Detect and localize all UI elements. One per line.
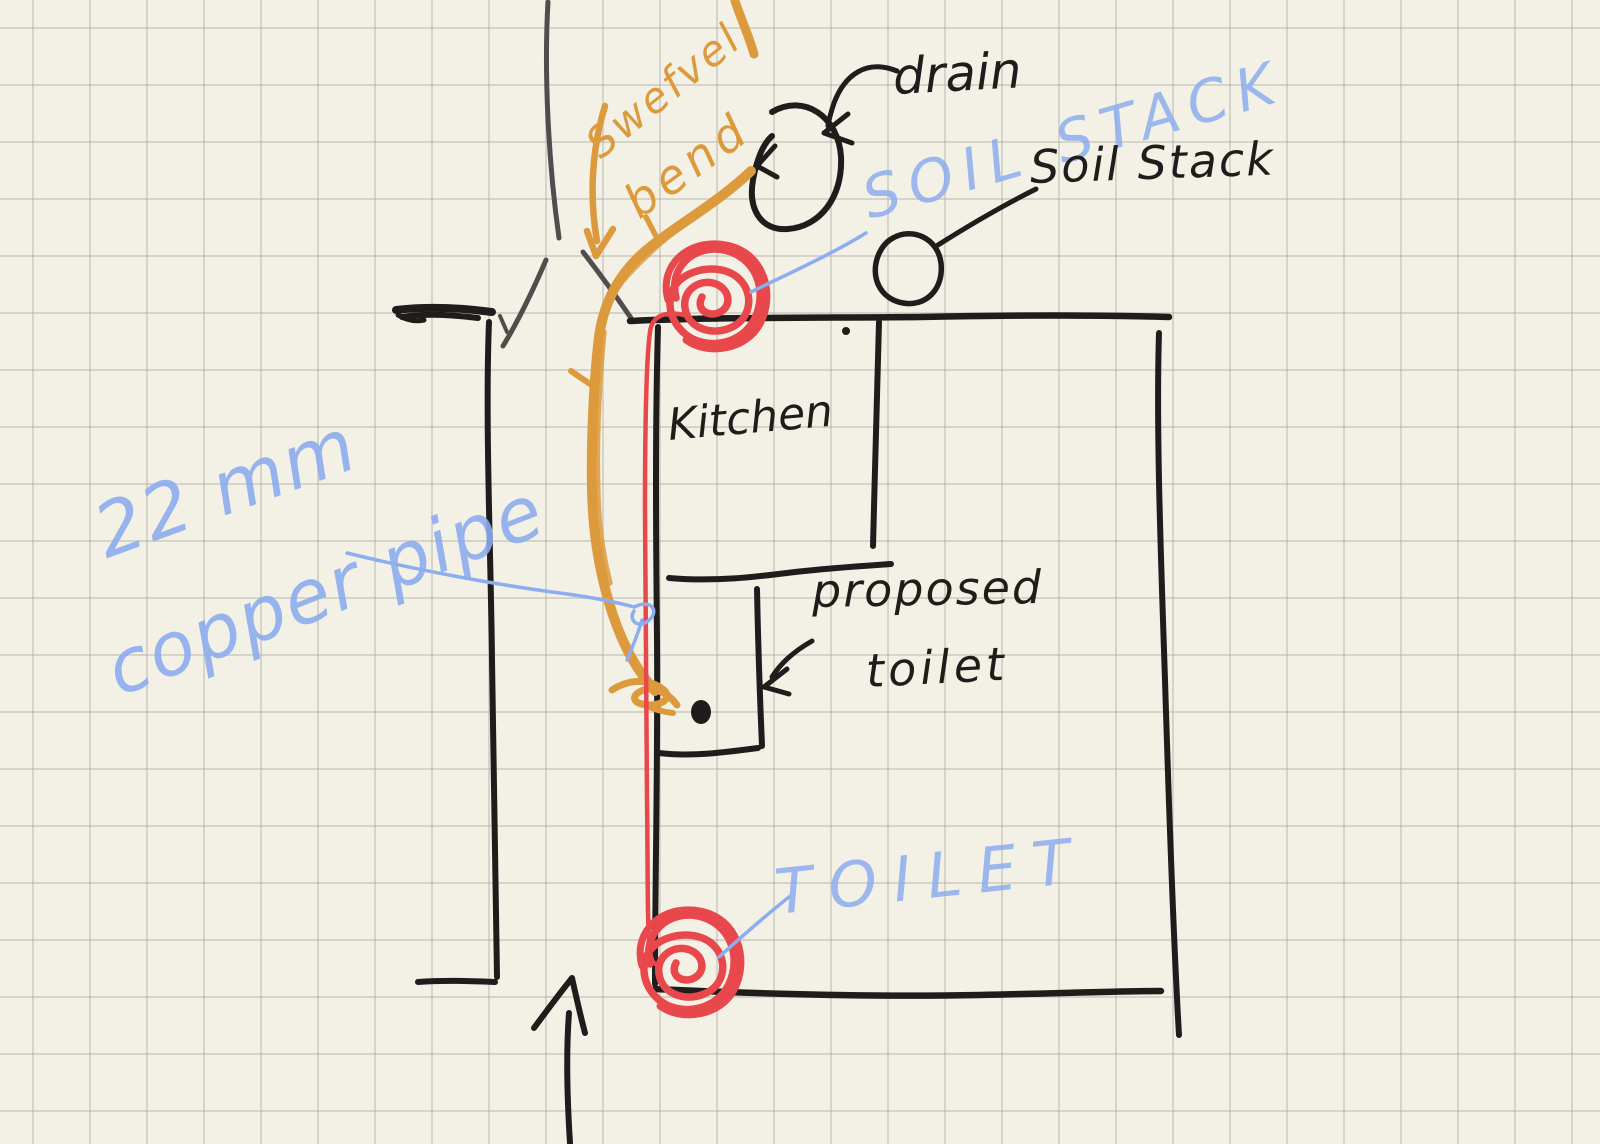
soil-stack-circle <box>875 234 941 304</box>
toilet-right-wall <box>757 589 762 746</box>
right-wall <box>1158 333 1179 1035</box>
drain-arrow <box>828 67 897 126</box>
red-scribble-bottom <box>644 915 734 1010</box>
thick-wall-scribble-2 <box>402 315 478 318</box>
soil-stack-blue-pointer <box>751 233 866 292</box>
proposed-toilet-label-line2: toilet <box>865 641 1009 694</box>
bottom-left-wall-stub <box>418 981 495 982</box>
interior-wall <box>655 327 658 984</box>
red-scribble-top <box>670 249 760 344</box>
swept-bend-arrowhead <box>587 229 613 256</box>
pipe-tick <box>571 371 593 386</box>
kitchen-right-wall <box>873 322 879 546</box>
left-wall <box>488 322 497 977</box>
toilet-position-dot <box>691 700 711 724</box>
soil-stack-label-black: Soil Stack <box>1029 135 1275 190</box>
proposed-toilet-arrow <box>764 641 812 694</box>
toilet-bottom-wall <box>659 748 758 754</box>
sketch-strokes-layer <box>0 0 1600 1144</box>
wall-dot <box>842 327 850 335</box>
thick-wall-scribble <box>396 308 492 312</box>
grid-paper-canvas: Swefvel bend drain SOIL STACK Soil Stack… <box>0 0 1600 1144</box>
proposed-toilet-label-line1: proposed <box>812 564 1044 614</box>
entrance-arrowhead <box>534 978 585 1033</box>
entrance-arrow <box>534 978 585 1143</box>
drain-label: drain <box>892 45 1023 102</box>
